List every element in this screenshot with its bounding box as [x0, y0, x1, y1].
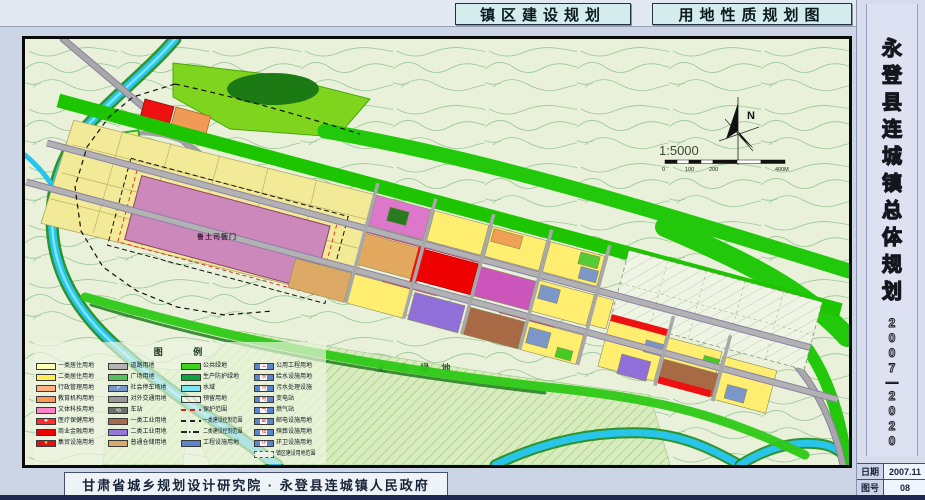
- legend-item-label: 殡葬设施用地: [276, 429, 312, 436]
- sidebar-title-panel: 永登县连城镇总体规划 2007—2020: [866, 4, 918, 456]
- legend-item-label: 车站: [130, 407, 142, 414]
- legend-item-label: 保护范围: [203, 407, 227, 414]
- legend-item-label: 工程设施用地: [203, 440, 239, 447]
- legend-columns: 一类居住用地二类居住用地行政管理用地教育机构用地文体科技用地✚医疗保健用地商业金…: [36, 361, 324, 459]
- legend-item-label: 二类居住用地: [58, 374, 94, 381]
- legend-item-label: 医疗保健用地: [58, 418, 94, 425]
- legend-item-label: 普通仓储用地: [130, 440, 166, 447]
- legend-item: 对外交通用地: [108, 394, 177, 404]
- sheet-title-right: 用地性质规划图: [652, 3, 852, 25]
- legend-title: 图 例: [46, 345, 324, 358]
- scale-tick: 400M: [775, 167, 789, 173]
- legend-item: 工公用工程用地: [254, 361, 324, 371]
- legend-item: 二类工业用地: [108, 427, 177, 437]
- sidebar-row: 日期2007.11: [857, 463, 925, 479]
- legend-item: 保护范围: [181, 405, 251, 415]
- sheet-title-left: 镇区建设规划: [455, 3, 631, 25]
- bottom-edge-bar: [0, 495, 925, 500]
- legend-item: 一类建设控制范围: [181, 416, 251, 426]
- legend-item-label: 镇区建设用地范围: [276, 451, 315, 458]
- legend-item: ★集贸设施用地: [36, 438, 105, 448]
- legend-item-label: 社会停车场地: [130, 385, 166, 392]
- legend-item-label: 生产防护绿地: [203, 374, 239, 381]
- sidebar-info-rows: 日期2007.11图号08: [857, 463, 925, 495]
- legend-item-label: 道路用地: [130, 363, 154, 370]
- legend-item: 二类建设控制范围: [181, 427, 251, 437]
- legend-item-label: 一类工业用地: [130, 418, 166, 425]
- legend-item: 一类工业用地: [108, 416, 177, 426]
- top-title-band: 镇区建设规划 用地性质规划图: [0, 0, 925, 27]
- legend: 图 例 一类居住用地二类居住用地行政管理用地教育机构用地文体科技用地✚医疗保健用…: [34, 342, 326, 464]
- north-label: N: [747, 110, 755, 122]
- legend-item-label: 广场用地: [130, 374, 154, 381]
- legend-item-label: 公用工程用地: [276, 363, 312, 370]
- legend-item-label: 预留用地: [203, 396, 227, 403]
- legend-item-label: 邮电设施用地: [276, 418, 312, 425]
- legend-item: 广场用地: [108, 372, 177, 382]
- legend-item: 一类居住用地: [36, 361, 105, 371]
- legend-item-label: 二类工业用地: [130, 429, 166, 436]
- sidebar-row: 图号08: [857, 479, 925, 495]
- plan-title-vertical: 永登县连城镇总体规划: [867, 4, 917, 306]
- scale-tick: 200: [709, 167, 718, 173]
- legend-item-label: 燃气站: [276, 407, 294, 414]
- legend-item-label: 教育机构用地: [58, 396, 94, 403]
- legend-item: 行政管理用地: [36, 383, 105, 393]
- legend-item: 教育机构用地: [36, 394, 105, 404]
- legend-item: 公共绿地: [181, 361, 251, 371]
- legend-item-label: 变电站: [276, 396, 294, 403]
- legend-item: 工程设施用地: [181, 438, 251, 448]
- legend-item: ✚医疗保健用地: [36, 416, 105, 426]
- heritage-label: 鲁土司衙门: [196, 232, 237, 241]
- legend-item-label: 对外交通用地: [130, 396, 166, 403]
- scale-text: 1:5000: [659, 143, 699, 158]
- legend-item-label: 水域: [203, 385, 215, 392]
- legend-item: 预留用地: [181, 394, 251, 404]
- plan-period-vertical: 2007—2020: [867, 306, 917, 449]
- legend-item-label: 商业金融用地: [58, 429, 94, 436]
- legend-item: 水域: [181, 383, 251, 393]
- legend-item-label: 行政管理用地: [58, 385, 94, 392]
- legend-item: 文体科技用地: [36, 405, 105, 415]
- legend-item: P社会停车场地: [108, 383, 177, 393]
- scale-tick: 100: [685, 167, 694, 173]
- planning-sheet: 镇区建设规划 用地性质规划图: [0, 0, 925, 500]
- legend-item: 生产防护绿地: [181, 372, 251, 382]
- legend-item: 污污水处理设施: [254, 383, 324, 393]
- legend-item-label: 一类居住用地: [58, 363, 94, 370]
- legend-item: 商业金融用地: [36, 427, 105, 437]
- scale-tick: 0: [662, 167, 665, 173]
- legend-item-label: 给水设施用地: [276, 374, 312, 381]
- right-sidebar: 永登县连城镇总体规划 2007—2020 日期2007.11图号08: [856, 0, 925, 500]
- legend-item-label: 环卫设施用地: [276, 440, 312, 447]
- legend-item: 道路用地: [108, 361, 177, 371]
- legend-item-label: 公共绿地: [203, 363, 227, 370]
- legend-item: 邮邮电设施用地: [254, 416, 324, 426]
- legend-item: 殡殡葬设施用地: [254, 427, 324, 437]
- legend-item: 普通仓储用地: [108, 438, 177, 448]
- legend-item: 二类居住用地: [36, 372, 105, 382]
- legend-item: 电变电站: [254, 394, 324, 404]
- legend-item-label: 一类建设控制范围: [203, 418, 242, 425]
- legend-item-label: 污水处理设施: [276, 385, 312, 392]
- legend-item: 环环卫设施用地: [254, 438, 324, 448]
- legend-item-label: 二类建设控制范围: [203, 429, 242, 436]
- credit-bar: 甘肃省城乡规划设计研究院 · 永登县连城镇人民政府: [64, 472, 448, 496]
- legend-item: 气燃气站: [254, 405, 324, 415]
- legend-item: 镇区建设用地范围: [254, 449, 324, 459]
- legend-item: 站车站: [108, 405, 177, 415]
- legend-item: 水给水设施用地: [254, 372, 324, 382]
- legend-item-label: 集贸设施用地: [58, 440, 94, 447]
- legend-item-label: 文体科技用地: [58, 407, 94, 414]
